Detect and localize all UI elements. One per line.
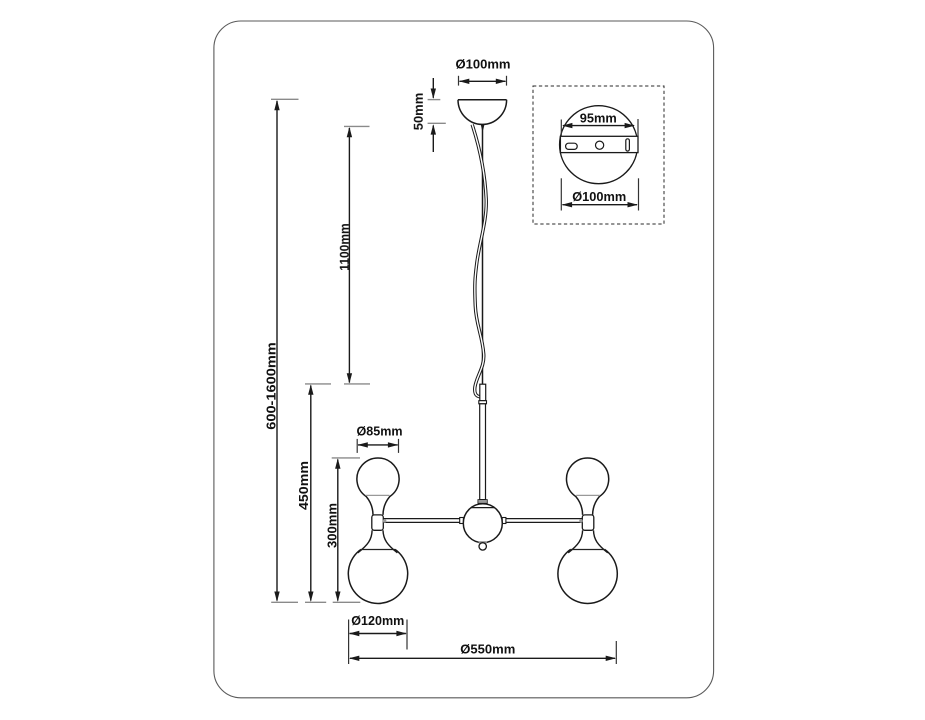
svg-text:1100mm: 1100mm [337, 223, 352, 270]
svg-text:Ø85mm: Ø85mm [357, 423, 403, 438]
svg-text:Ø120mm: Ø120mm [351, 613, 404, 628]
svg-text:Ø100mm: Ø100mm [456, 57, 511, 72]
svg-text:450mm: 450mm [296, 461, 311, 510]
svg-text:600-1600mm: 600-1600mm [264, 342, 279, 430]
svg-text:300mm: 300mm [325, 503, 340, 548]
svg-text:Ø100mm: Ø100mm [572, 189, 626, 204]
svg-text:95mm: 95mm [580, 111, 617, 126]
svg-text:Ø550mm: Ø550mm [460, 642, 515, 657]
svg-text:50mm: 50mm [411, 93, 426, 131]
